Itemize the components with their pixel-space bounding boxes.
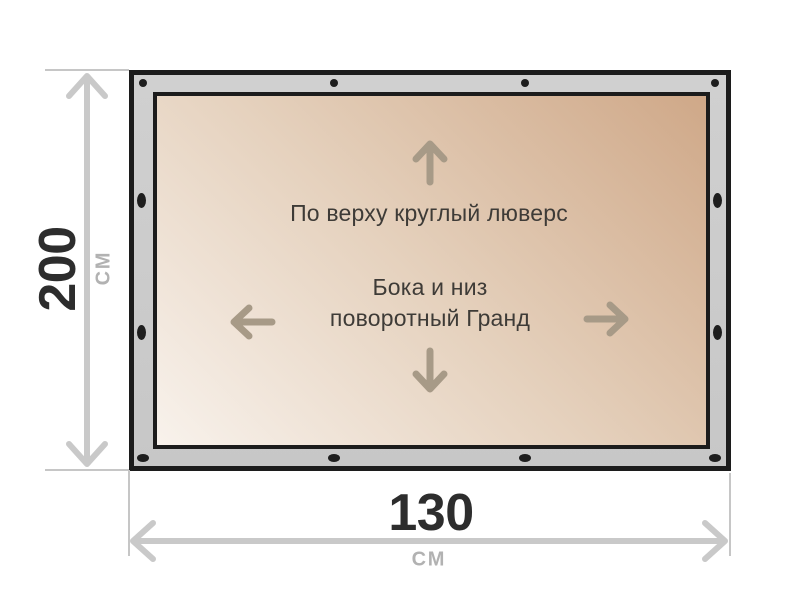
- grommet-top-left-icon: [139, 79, 147, 87]
- sides-finish-label-line1: Бока и низ: [230, 272, 630, 303]
- grommet-bottom-right-icon: [709, 454, 721, 462]
- grommet-right-lower-icon: [713, 325, 722, 340]
- arrow-down-icon: [412, 347, 448, 395]
- grommet-bottom-left-icon: [137, 454, 149, 462]
- height-dimension-value: 200: [28, 226, 88, 311]
- arrow-up-icon: [412, 138, 448, 186]
- banner-frame: [129, 70, 731, 471]
- grommet-bottom-mid-right-icon: [519, 454, 531, 462]
- height-dimension-unit: СМ: [93, 251, 116, 286]
- diagram-canvas: По верху круглый люверс Бока и низ повор…: [0, 0, 800, 600]
- height-tick-bottom: [45, 469, 129, 471]
- grommet-left-lower-icon: [137, 325, 146, 340]
- grommet-top-mid-left-icon: [330, 79, 338, 87]
- top-edge-finish-label: По верху круглый люверс: [179, 200, 679, 226]
- sides-finish-label-line2: поворотный Гранд: [230, 303, 630, 334]
- width-dimension-value: 130: [388, 483, 473, 543]
- width-dimension-unit: СМ: [412, 549, 447, 572]
- grommet-top-right-icon: [711, 79, 719, 87]
- grommet-bottom-mid-left-icon: [328, 454, 340, 462]
- grommet-top-mid-right-icon: [521, 79, 529, 87]
- grommet-right-upper-icon: [713, 193, 722, 208]
- grommet-left-upper-icon: [137, 193, 146, 208]
- sides-finish-label: Бока и низ поворотный Гранд: [230, 272, 630, 334]
